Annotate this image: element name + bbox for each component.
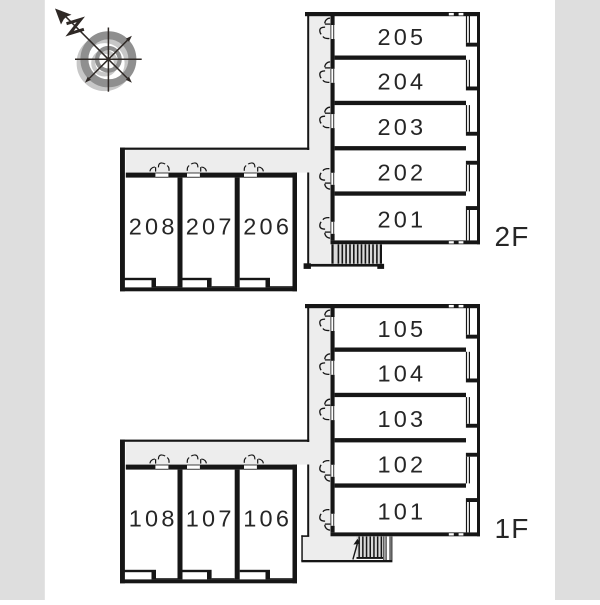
- svg-text:206: 206: [243, 214, 292, 240]
- svg-text:102: 102: [377, 451, 426, 477]
- svg-text:204: 204: [377, 69, 426, 95]
- svg-text:207: 207: [186, 214, 235, 240]
- svg-text:107: 107: [186, 506, 235, 532]
- svg-text:1F: 1F: [495, 513, 530, 544]
- svg-text:108: 108: [129, 506, 178, 532]
- svg-text:208: 208: [129, 214, 178, 240]
- svg-text:103: 103: [377, 406, 426, 432]
- svg-text:205: 205: [377, 24, 426, 50]
- svg-text:2F: 2F: [495, 221, 530, 252]
- svg-text:201: 201: [377, 207, 426, 233]
- svg-text:105: 105: [377, 316, 426, 342]
- svg-text:101: 101: [377, 498, 426, 524]
- svg-text:202: 202: [377, 159, 426, 185]
- svg-text:203: 203: [377, 114, 426, 140]
- svg-text:106: 106: [243, 506, 292, 532]
- svg-text:104: 104: [377, 361, 426, 387]
